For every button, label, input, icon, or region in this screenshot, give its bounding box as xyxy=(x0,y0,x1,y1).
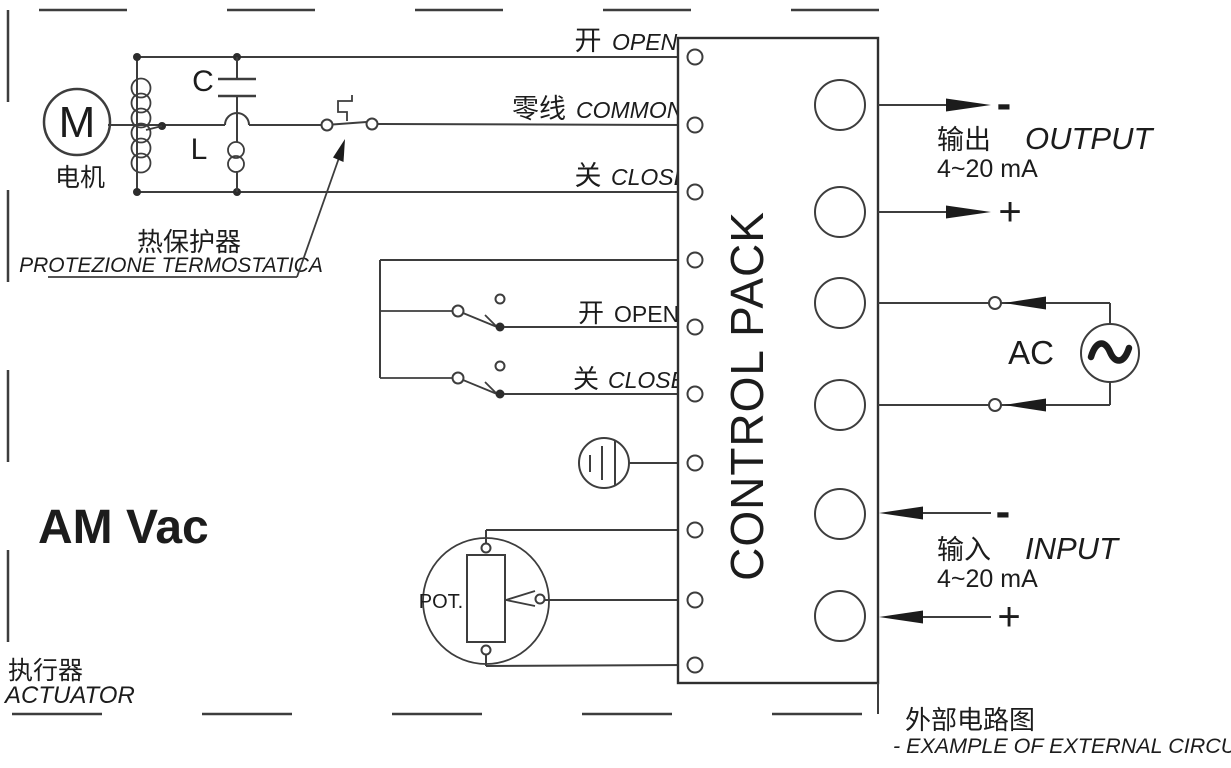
input-range: 4~20 mA xyxy=(937,565,1038,593)
terminal xyxy=(688,118,703,133)
thermal-label-it: PROTEZIONE TERMOSTATICA xyxy=(19,254,323,277)
terminal xyxy=(688,320,703,335)
callout-arrowhead xyxy=(333,139,345,162)
wiring-diagram-canvas: M 电机 C L xyxy=(0,0,1231,768)
motor-label: 电机 xyxy=(55,164,105,192)
capacitor-symbol: C xyxy=(192,57,256,98)
wire-open-cn: 开 xyxy=(575,26,602,56)
caption-cn: 外部电路图 xyxy=(905,705,1035,735)
sine-wave-glyph xyxy=(1091,344,1129,361)
control-pack-title: CONTROL PACK xyxy=(721,211,773,581)
wire-close-cn: 关 xyxy=(575,161,602,191)
input-label-en: INPUT xyxy=(1025,531,1120,566)
ac-bottom-arrow xyxy=(1004,399,1046,412)
output-minus-arrow xyxy=(946,99,991,112)
thermal-protection-callout: 热保护器 PROTEZIONE TERMOSTATICA xyxy=(19,139,345,277)
input-section: - 输入 INPUT 4~20 mA + xyxy=(879,487,1120,639)
output-plus-arrow xyxy=(946,206,991,219)
terminal xyxy=(688,185,703,200)
output-minus-sign: - xyxy=(997,79,1012,128)
output-range: 4~20 mA xyxy=(937,155,1038,183)
input-label-cn: 输入 xyxy=(937,535,991,565)
input-minus-arrow xyxy=(879,507,923,520)
limit-switch-group: 开 OPEN 关 CLOSE xyxy=(380,260,688,399)
control-pack: CONTROL PACK xyxy=(678,38,878,683)
input-minus-sign: - xyxy=(996,487,1011,536)
input-plus-arrow xyxy=(879,611,923,624)
model-name: AM Vac xyxy=(38,501,209,554)
thermal-protection-switch xyxy=(322,95,378,131)
terminal xyxy=(688,387,703,402)
ground-symbol xyxy=(579,438,688,488)
ac-top-node xyxy=(989,297,1001,309)
terminal xyxy=(688,523,703,538)
ac-source-symbol xyxy=(1081,324,1139,382)
motor-letter: M xyxy=(59,98,96,147)
output-label-cn: 输出 xyxy=(937,125,991,155)
actuator-label-en: ACTUATOR xyxy=(3,682,135,709)
terminal xyxy=(688,456,703,471)
actuator-label-cn: 执行器 xyxy=(8,657,83,685)
ac-label: AC xyxy=(1008,334,1054,371)
wire-common-cn: 零线 xyxy=(512,94,566,124)
terminal xyxy=(688,593,703,608)
potentiometer-wiper xyxy=(506,591,688,606)
capacitor-label: C xyxy=(192,65,214,98)
terminal xyxy=(688,50,703,65)
output-section: - 输出 OUTPUT 4~20 mA + xyxy=(878,79,1155,234)
output-plus-sign: + xyxy=(998,190,1021,234)
external-circuit-caption: 外部电路图 - EXAMPLE OF EXTERNAL CIRCUIT - xyxy=(878,683,1231,758)
limit-switch-close: 关 CLOSE xyxy=(380,362,688,399)
ac-bottom-node xyxy=(989,399,1001,411)
switch-open-cn: 开 xyxy=(578,298,604,328)
limit-switch-open: 开 OPEN xyxy=(380,295,688,332)
wire-common-en: COMMON xyxy=(576,97,684,123)
ac-top-arrow xyxy=(1004,297,1046,310)
ac-supply-section: AC xyxy=(878,297,1139,412)
terminal xyxy=(688,253,703,268)
power-wire-labels: 开 OPEN 零线 COMMON 关 CLOSE xyxy=(512,26,690,191)
inductor-symbol: L xyxy=(191,96,244,192)
thermal-element-glyph xyxy=(338,95,352,121)
thermal-label-cn: 热保护器 xyxy=(137,227,241,257)
wiring-diagram: M 电机 C L xyxy=(0,0,1231,768)
motor-symbol: M 电机 xyxy=(44,89,110,192)
control-pack-box xyxy=(678,38,878,683)
potentiometer-symbol: POT. xyxy=(419,530,688,666)
switch-open-en: OPEN xyxy=(614,301,679,327)
actuator-caption: 执行器 ACTUATOR xyxy=(3,657,135,709)
potentiometer-label: POT. xyxy=(419,591,463,613)
inductor-label: L xyxy=(191,133,208,166)
caption-en: - EXAMPLE OF EXTERNAL CIRCUIT - xyxy=(893,734,1231,758)
wire-open-en: OPEN xyxy=(612,29,678,55)
terminal xyxy=(688,658,703,673)
output-label-en: OUTPUT xyxy=(1025,121,1155,156)
switch-close-en: CLOSE xyxy=(608,367,687,393)
switch-close-cn: 关 xyxy=(573,364,599,394)
input-plus-sign: + xyxy=(997,595,1020,639)
